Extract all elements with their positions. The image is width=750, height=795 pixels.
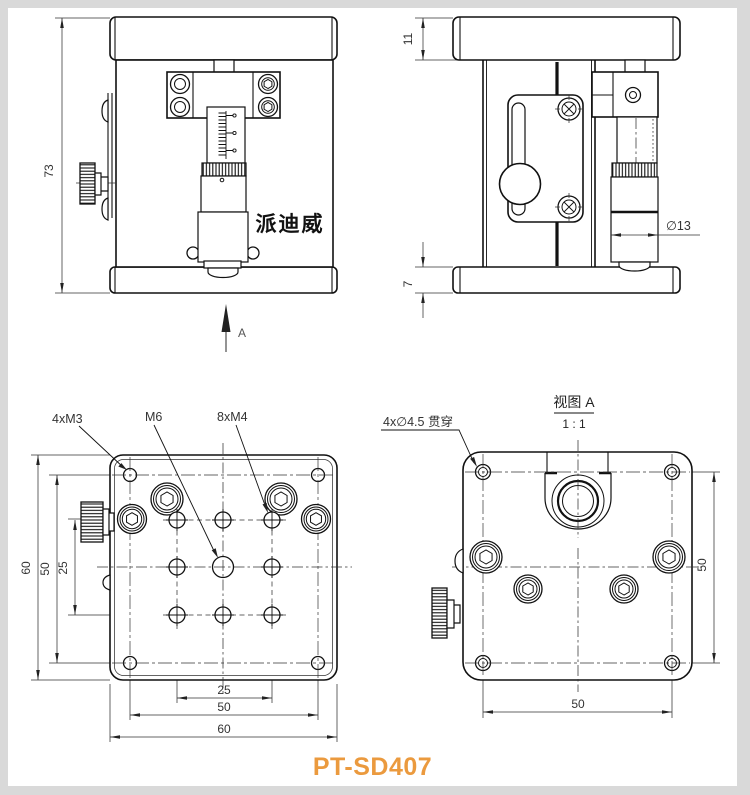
front-left-lock-knob [76, 93, 116, 220]
top-view-knob [81, 502, 114, 542]
dim-bottom-grid: 25 [217, 683, 231, 697]
dim-left-holes: 50 [38, 562, 52, 576]
label-through-holes: 4x∅4.5 贯穿 [383, 414, 453, 429]
dim-thimble-diameter: ∅13 [666, 219, 691, 233]
bracket-screw [171, 98, 190, 117]
cap-screw [118, 505, 147, 534]
cap-screw [653, 541, 685, 573]
dim-bottom-holes: 50 [217, 700, 231, 714]
view-scale: 1 : 1 [562, 417, 586, 431]
label-corner-holes: 4xM3 [52, 412, 83, 426]
knurl-ring [202, 163, 246, 176]
side-view: 11 7 [401, 17, 700, 318]
dim-right: 50 [695, 558, 709, 572]
dim-bottom: 50 [571, 697, 585, 711]
bottom-view: 50 50 [381, 394, 720, 718]
cap-screw [151, 483, 183, 515]
side-micrometer [592, 60, 658, 271]
brand-label: 派迪威 [256, 212, 325, 236]
bracket-screw [259, 75, 278, 94]
view-a-arrow: A [222, 304, 247, 352]
label-center-hole: M6 [145, 410, 162, 424]
view-a-arrow-label: A [238, 326, 246, 340]
side-slot-plate [500, 95, 584, 222]
cap-screw [610, 575, 638, 603]
dim-base-plate: 7 [401, 280, 415, 287]
cap-screw [302, 505, 331, 534]
view-title-block: 视图 A 1 : 1 [553, 394, 595, 431]
side-lock-knob [500, 164, 541, 205]
model-number: PT-SD407 [8, 753, 737, 782]
dim-top-plate: 11 [401, 32, 415, 45]
cad-drawing-canvas: 73 [0, 0, 750, 795]
bracket-screw [259, 98, 278, 117]
dim-bottom-outer: 60 [217, 722, 231, 736]
front-view: 73 [42, 17, 337, 352]
dim-left-grid: 25 [56, 561, 70, 575]
drawing-sheet: 73 [0, 0, 750, 795]
bottom-view-knob [432, 588, 460, 638]
knurl-ring [612, 163, 657, 177]
cap-screw [265, 483, 297, 515]
bracket-screw [171, 75, 190, 94]
dim-front-height: 73 [42, 164, 56, 178]
top-plate [110, 455, 337, 680]
view-title: 视图 A [553, 394, 595, 410]
label-grid-holes: 8xM4 [217, 410, 248, 424]
cap-screw [470, 541, 502, 573]
top-view: 60 50 25 25 50 60 [19, 410, 352, 742]
dim-left-outer: 60 [19, 561, 33, 575]
cap-screw [514, 575, 542, 603]
